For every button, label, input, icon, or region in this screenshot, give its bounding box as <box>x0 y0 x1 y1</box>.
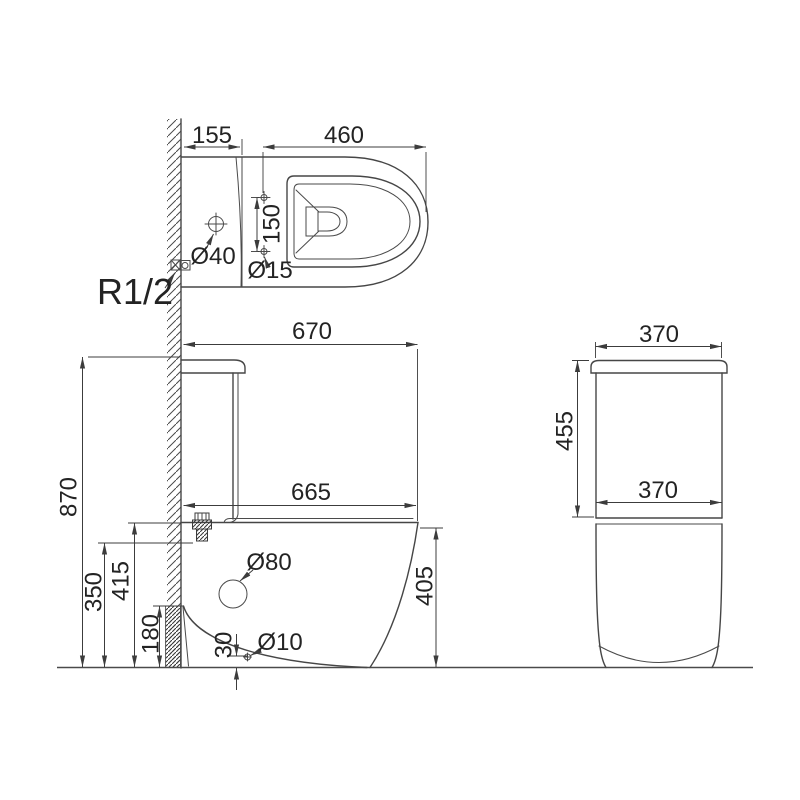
plan-sump-outer <box>306 207 347 236</box>
rear-view-dimensions: 370 455 370 <box>552 321 722 517</box>
side-cistern-front-inner <box>230 373 238 523</box>
side-view <box>181 360 418 668</box>
inlet-valve-icon <box>193 513 212 541</box>
dim-rim-height: 415 <box>108 561 135 601</box>
plan-seat-inner <box>294 184 410 259</box>
dim-bottom-width: 370 <box>638 477 678 504</box>
outlet-hole-circle <box>219 580 247 608</box>
dim-total-depth: 670 <box>292 318 332 345</box>
fixing-hole-upper-icon <box>258 192 270 204</box>
plan-sump-inner <box>318 212 340 231</box>
plan-funnel-lower <box>296 231 319 253</box>
plan-funnel-upper <box>296 190 319 212</box>
dim-lid-hole-dia: Ø40 <box>190 243 235 270</box>
dim-total-height: 870 <box>56 477 83 517</box>
side-view-dimensions: 670 665 870 415 350 180 405 <box>56 318 444 690</box>
dim-top-width: 370 <box>639 321 679 348</box>
plan-cistern-front-curve <box>236 157 241 287</box>
dim-cistern-depth: 155 <box>192 122 232 149</box>
dim-cistern-height: 455 <box>552 411 579 451</box>
dim-fixing-hole-spacing: 150 <box>259 204 286 244</box>
wall-outlet-section-hatch <box>166 606 181 668</box>
dim-rim-depth: 665 <box>291 479 331 506</box>
technical-drawing-canvas: 155 460 150 Ø40 Ø15 R1/2 <box>0 0 800 800</box>
dim-small-hole-height: 30 <box>211 632 238 659</box>
plan-seat-outer <box>287 176 420 267</box>
small-hole-icon <box>244 653 252 661</box>
wall-hatching <box>167 119 181 668</box>
rear-body-left <box>596 524 606 668</box>
dim-outlet-zone-height: 180 <box>138 614 165 654</box>
dim-bowl-length: 460 <box>324 122 364 149</box>
dim-outlet-dia: Ø80 <box>246 549 291 576</box>
wall-section <box>166 119 182 668</box>
rear-base-arc <box>599 646 719 663</box>
fixing-hole-lower-icon <box>258 246 270 258</box>
dim-front-height: 405 <box>412 566 439 606</box>
rear-cistern-lid <box>591 361 727 374</box>
dim-small-hole-dia: Ø10 <box>257 629 302 656</box>
dim-inlet-height: 350 <box>81 572 108 612</box>
rear-view <box>591 361 727 668</box>
lid-hole-crosshair-icon <box>205 213 227 235</box>
side-cistern-lid <box>181 360 245 373</box>
rear-body-right <box>712 524 722 668</box>
dim-fixing-hole-dia: Ø15 <box>247 257 292 284</box>
dim-water-inlet: R1/2 <box>97 271 173 312</box>
